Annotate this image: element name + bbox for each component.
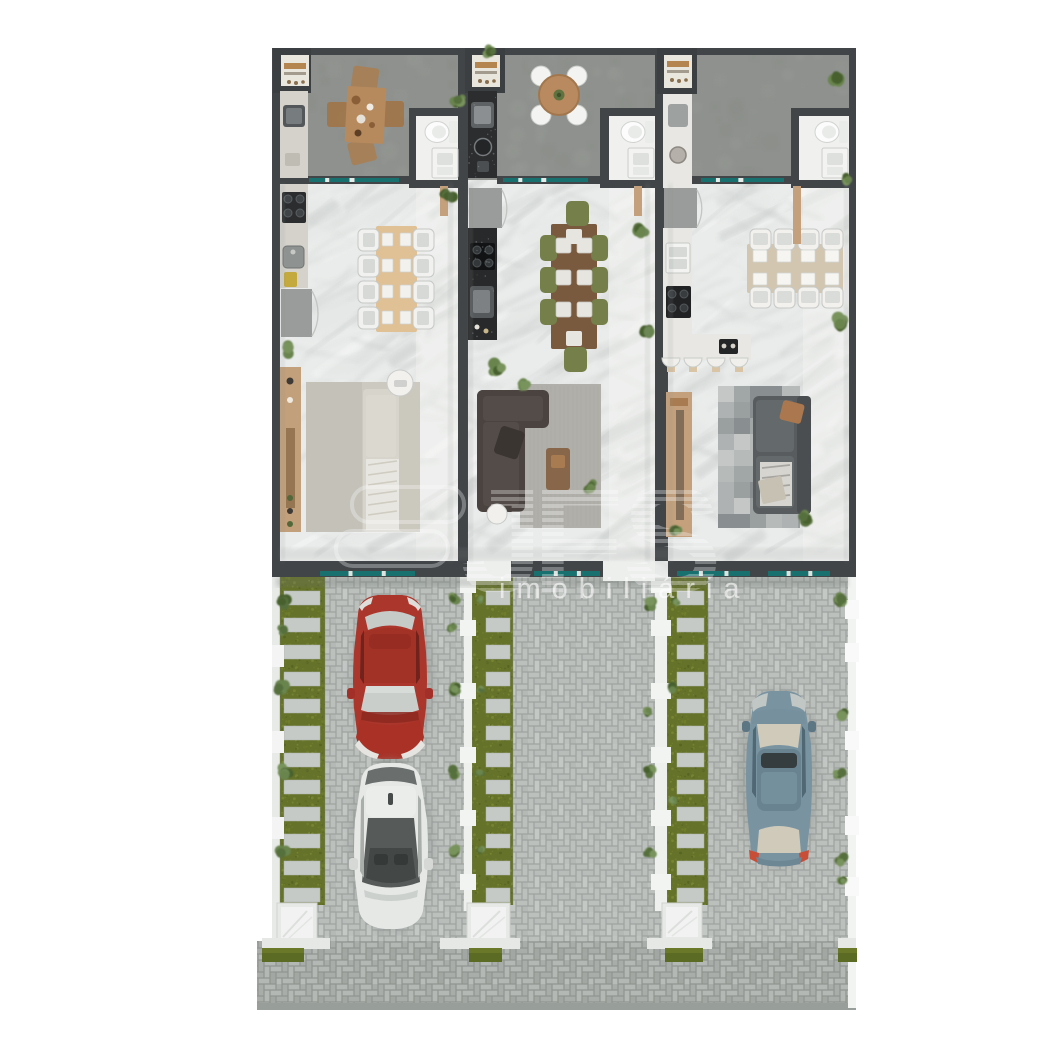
svg-text:imobiliária: imobiliária xyxy=(499,573,751,605)
